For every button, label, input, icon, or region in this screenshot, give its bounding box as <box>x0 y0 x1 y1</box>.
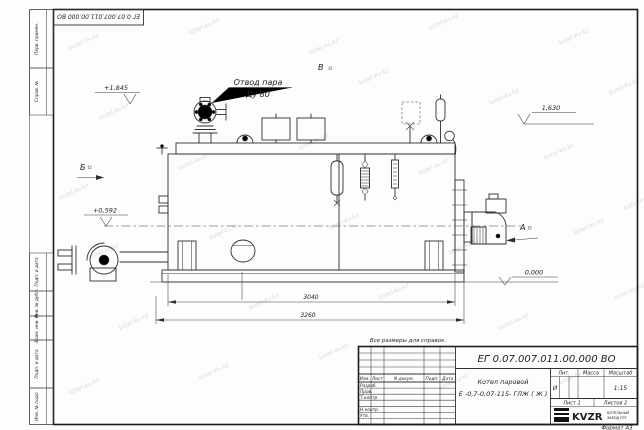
lifting-lug-right <box>421 135 437 143</box>
callout-line1: Отвод пара <box>234 78 283 87</box>
col-data: Дата <box>441 376 453 382</box>
drawing-sheet: kotel-kv.kz Перв. примен. <box>0 0 644 430</box>
support-legs <box>178 241 443 270</box>
manhole <box>231 240 255 262</box>
col-izm: Изм. <box>360 376 370 382</box>
row-utv: Утв. <box>360 413 369 419</box>
company-logo: KVZR КОТЕЛЬНЫЙ ЗАВОД РЭТ <box>554 408 629 423</box>
logo-text: KVZR <box>572 412 603 423</box>
elevation-mark-right: 1,630 <box>518 104 594 124</box>
small-valve <box>406 122 414 143</box>
view-marker-b: Б <box>77 163 104 180</box>
lit-header: Лит. <box>557 371 570 377</box>
steam-outlet-callout: Отвод пара Ду 80 <box>212 78 292 103</box>
sheets-value: Листов 2 <box>603 401 627 407</box>
corner-stamp-designation: ЕГ 0.07.007.011.00.000 ВО <box>57 13 140 20</box>
margin-label-vzam-inv: Взам. инв. № <box>34 313 40 343</box>
format-label: Формат А3 <box>601 426 633 430</box>
boiler-drum <box>168 143 455 270</box>
corner-stamp: ЕГ 0.07.007.011.00.000 ВО <box>54 10 144 26</box>
view-b-label: Б <box>80 163 86 172</box>
elevation-mark-top: +1,845 <box>95 84 140 104</box>
sheet-cells: Лист 1 Листов 2 <box>551 399 638 407</box>
massa-header: Масса <box>583 371 599 377</box>
row-prov: Пров. <box>360 389 373 395</box>
product-name-cell: Котел паровой Е -0,7-0,07-115- ГЛЖ ( Ж ) <box>459 369 551 425</box>
product-name-line2: Е -0,7-0,07-115- ГЛЖ ( Ж ) <box>459 390 548 398</box>
col-list: Лист <box>371 376 383 382</box>
designation-cell: ЕГ 0.07.007.011.00.000 ВО <box>456 354 638 369</box>
margin-label-perv-primen: Перв. примен. <box>34 23 40 55</box>
logo-sub-line2: ЗАВОД РЭТ <box>607 416 628 420</box>
sheet-value: Лист 1 <box>562 401 580 407</box>
view-marker-v: В <box>318 63 332 72</box>
boiler-drawing-svg: kotel-kv.kz Перв. примен. <box>0 0 644 430</box>
callout-line2: Ду 80 <box>245 90 270 99</box>
feed-pump-assembly <box>58 243 168 281</box>
water-level-gauges <box>331 154 399 206</box>
lifting-lug-left <box>237 135 253 143</box>
margin-label-podp-data-2: Подп. и дата <box>34 349 40 379</box>
dim-3040-value: 3040 <box>303 294 318 301</box>
col-podp: Подп. <box>425 376 438 382</box>
col-doc: N докум. <box>394 376 414 382</box>
steam-outlet-valve <box>193 98 226 144</box>
product-name-line1: Котел паровой <box>478 378 529 386</box>
elevation-right-value: 1,630 <box>542 104 561 112</box>
boiler-front-view: Отвод пара Ду 80 <box>58 63 594 324</box>
elevation-mark-middle: +0,592 <box>84 207 128 227</box>
elevation-mark-zero: 0,000 <box>499 269 558 286</box>
base-skid <box>150 270 558 300</box>
thermometer <box>436 95 445 143</box>
dimension-drum-length: 3040 <box>168 274 455 306</box>
row-nkontr: Н.контр. <box>360 407 379 413</box>
view-a-label: А <box>519 223 525 232</box>
reference-note: Все размеры для справок. <box>370 338 447 344</box>
margin-label-sprav-no: Справ. № <box>34 81 40 102</box>
designation-text: ЕГ 0.07.007.011.00.000 ВО <box>478 354 616 365</box>
row-tkontr: Т.контр. <box>360 395 379 401</box>
lit-value: И <box>553 385 558 392</box>
row-razrab: Разраб. <box>360 383 377 389</box>
logo-sub-line1: КОТЕЛЬНЫЙ <box>607 410 629 415</box>
masshtab-value: 1:15 <box>614 385 628 392</box>
title-block: Изм. Лист N докум. Подп. Дата Разраб. Пр… <box>359 347 638 425</box>
masshtab-header: Масштаб <box>609 371 633 377</box>
view-v-label: В <box>318 63 324 72</box>
margin-column: Перв. примен. Справ. № Подп. и дата Инв.… <box>30 10 54 425</box>
watermark-layer <box>58 12 644 397</box>
margin-label-podp-data-1: Подп. и дата <box>34 257 40 287</box>
dim-3260-value: 3260 <box>300 312 315 319</box>
elevation-top-value: +1,845 <box>104 84 128 92</box>
front-fittings <box>157 145 168 214</box>
elevation-zero-value: 0,000 <box>525 269 544 277</box>
hidden-component-outline <box>402 102 420 124</box>
margin-label-inv-podl: Инв. № подл. <box>34 391 40 421</box>
elevation-middle-value: +0,592 <box>93 207 117 215</box>
